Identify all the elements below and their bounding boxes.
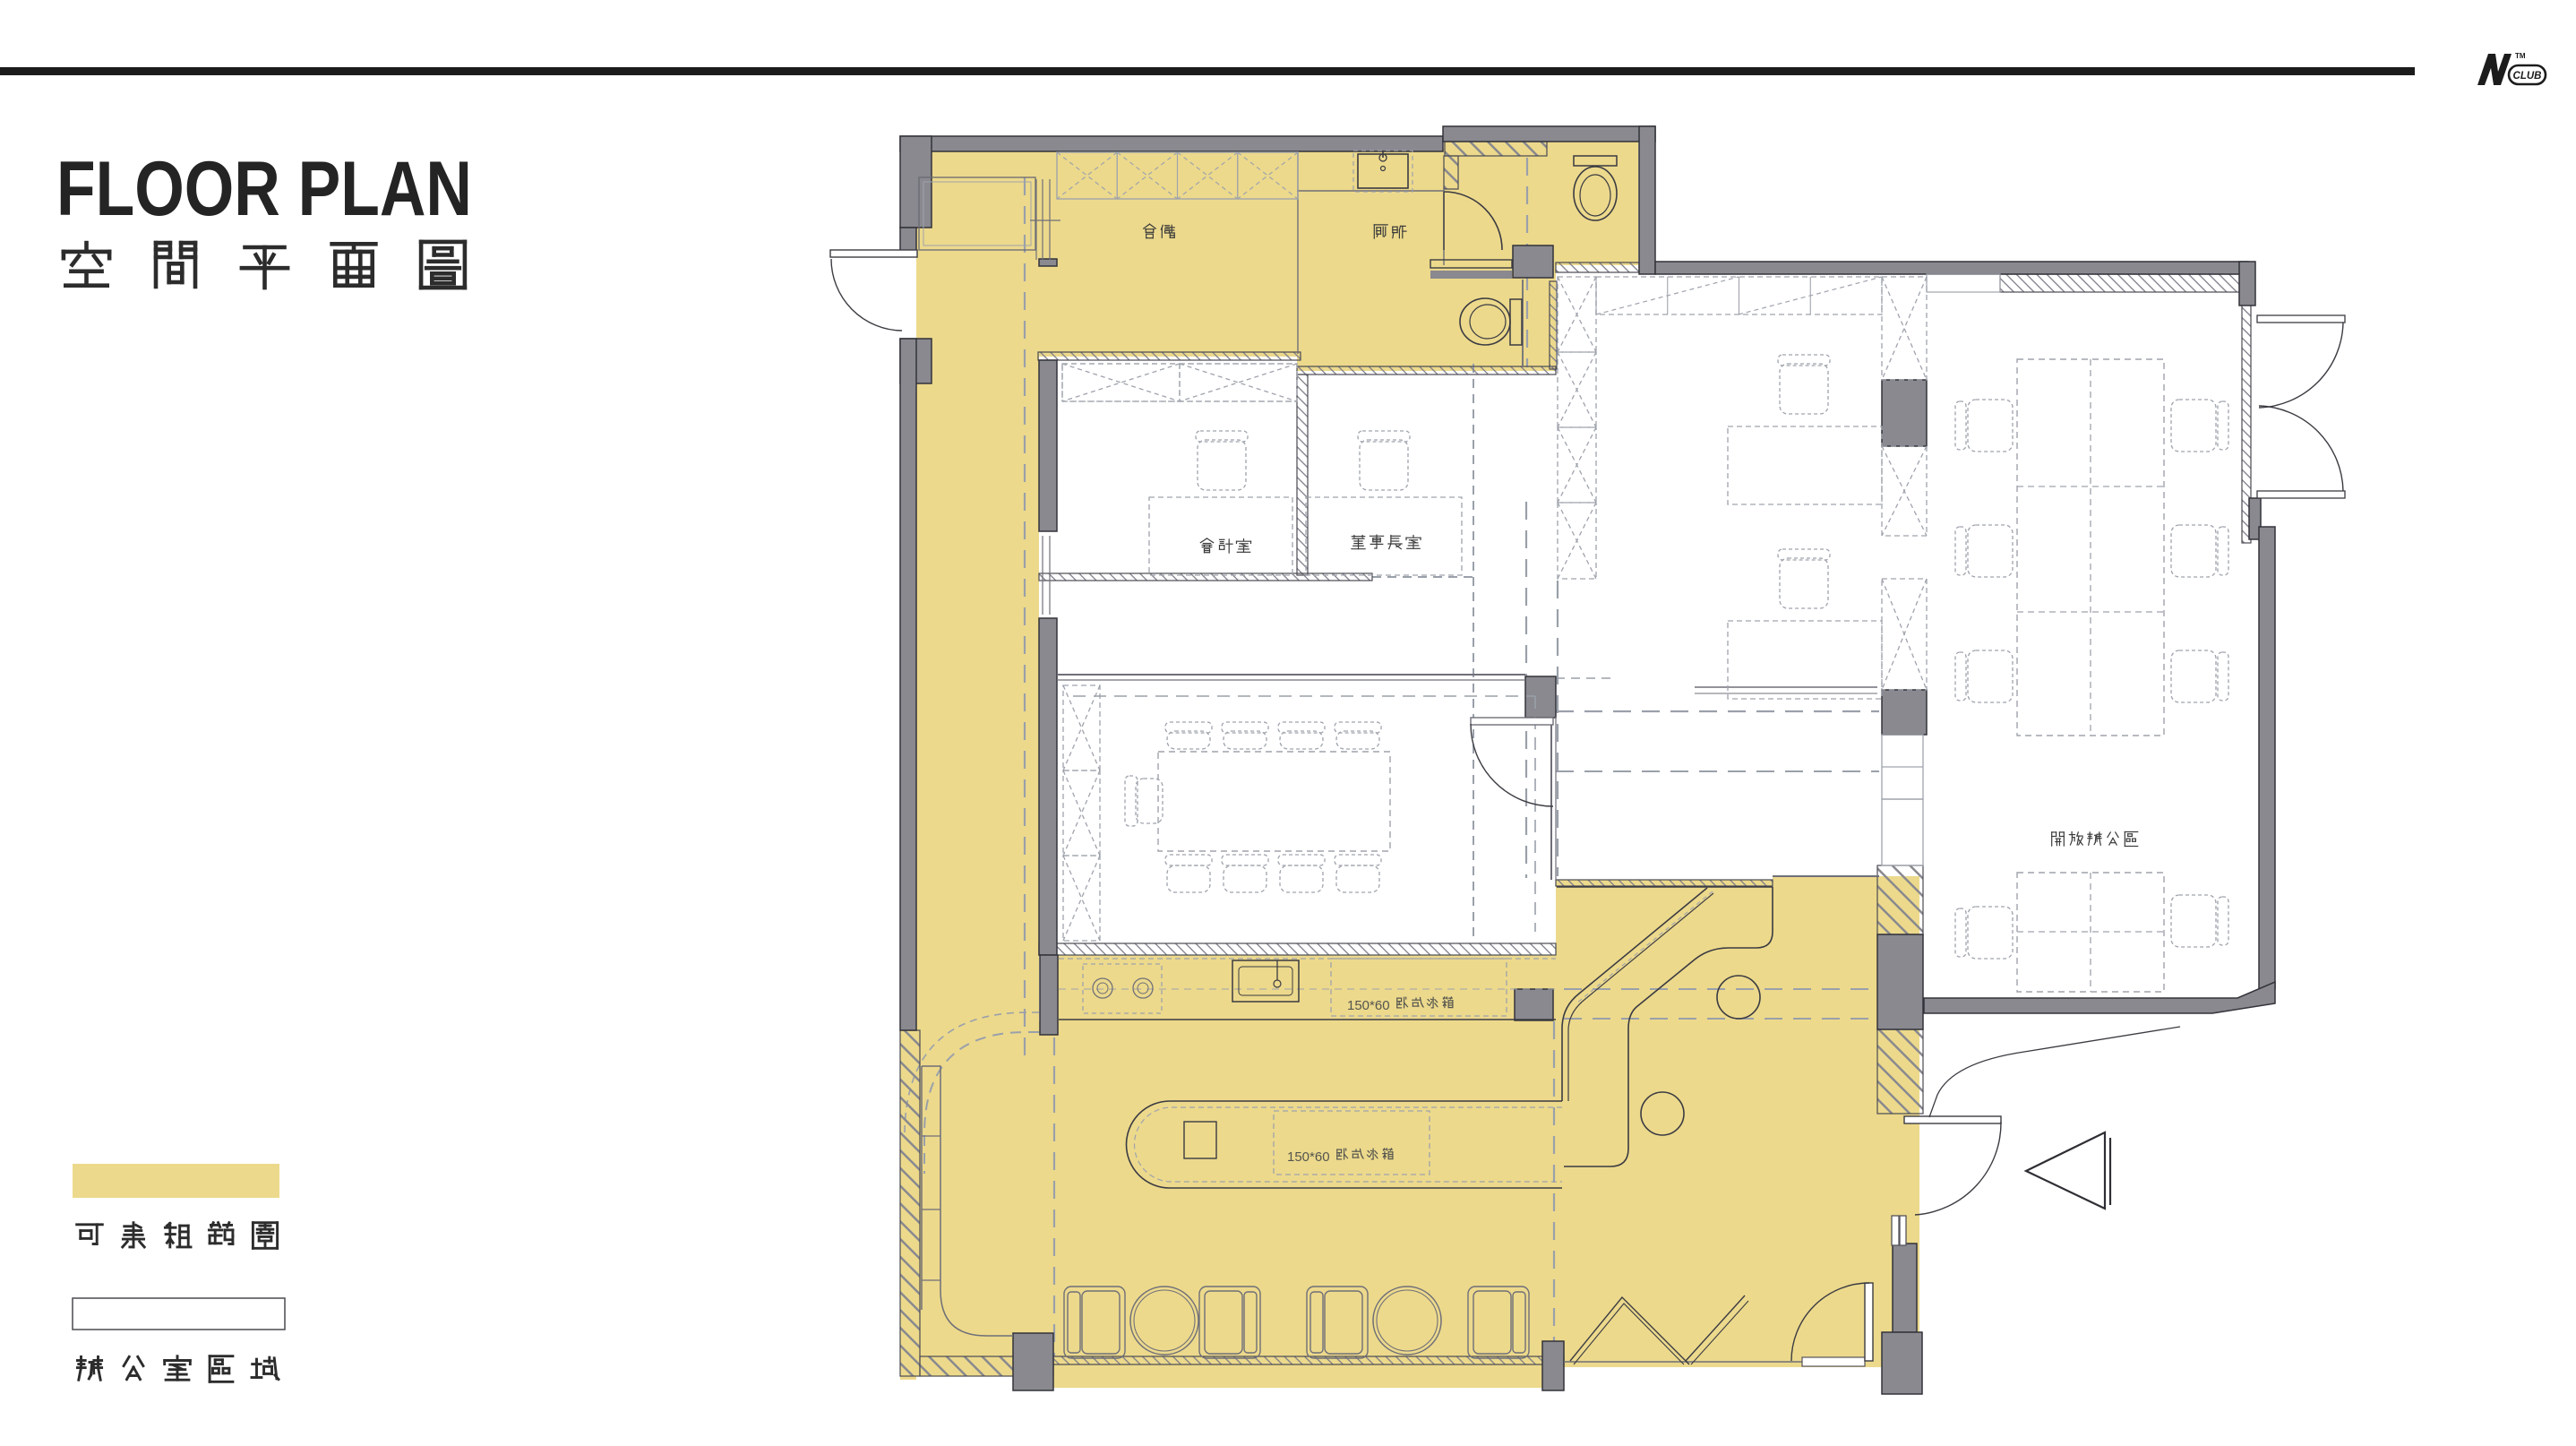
svg-text:CLUB: CLUB [2513,71,2542,82]
svg-text:150*60: 150*60 [1347,998,1390,1013]
svg-text:150*60: 150*60 [1287,1149,1330,1165]
svg-text:TM: TM [2515,52,2526,60]
svg-text:FLOOR PLAN: FLOOR PLAN [56,146,472,232]
